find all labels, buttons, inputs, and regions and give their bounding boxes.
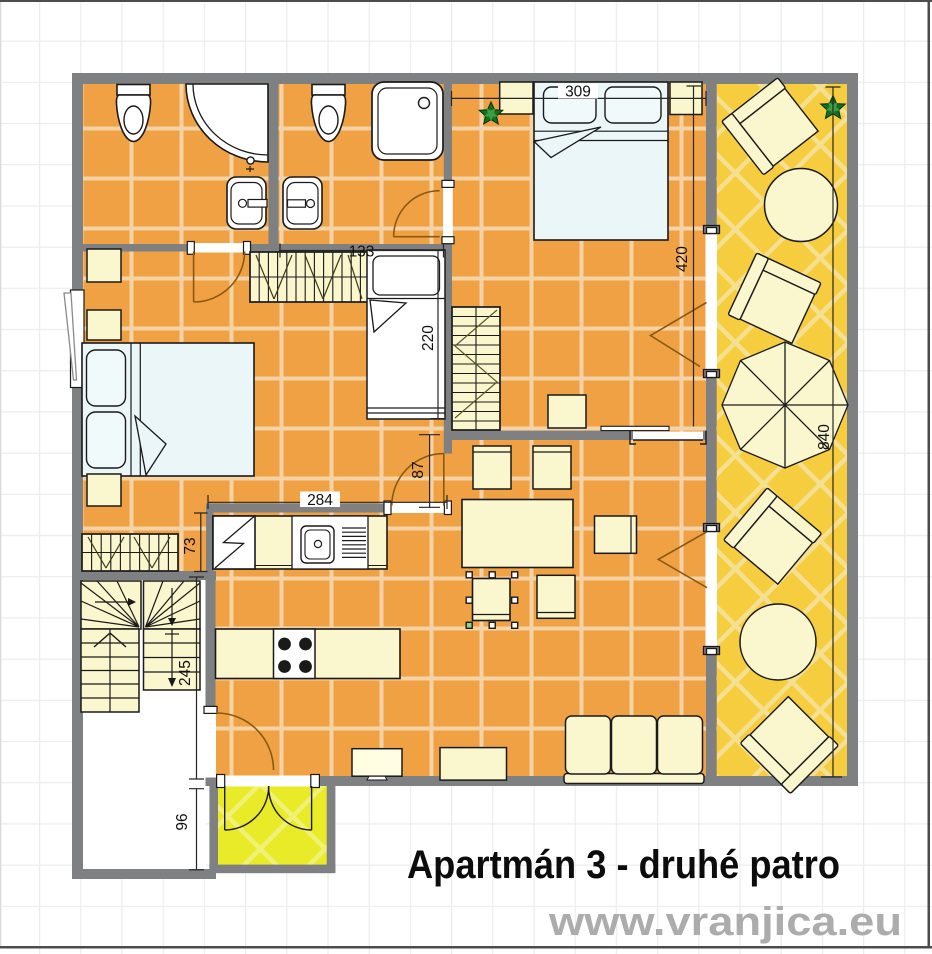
svg-text:73: 73	[182, 537, 199, 554]
svg-text:245: 245	[177, 660, 194, 686]
svg-text:220: 220	[420, 325, 437, 351]
svg-text:420: 420	[674, 246, 691, 272]
svg-text:840: 840	[816, 424, 833, 450]
svg-text:284: 284	[307, 492, 333, 509]
svg-text:www.vranjica.eu: www.vranjica.eu	[548, 900, 902, 944]
svg-text:309: 309	[565, 84, 591, 101]
svg-text:Apartmán 3 - druhé patro: Apartmán 3 - druhé patro	[407, 843, 840, 887]
svg-text:87: 87	[410, 461, 427, 478]
svg-text:96: 96	[174, 813, 191, 830]
svg-text:133: 133	[349, 244, 375, 261]
